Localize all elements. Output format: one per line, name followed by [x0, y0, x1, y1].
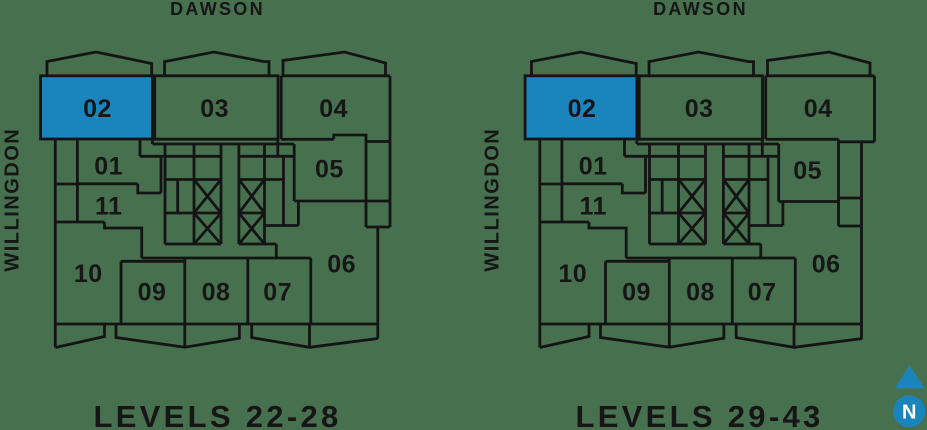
svg-text:DAWSON: DAWSON — [170, 0, 265, 19]
svg-text:WILLINGDON: WILLINGDON — [2, 128, 24, 272]
svg-text:05: 05 — [793, 157, 822, 185]
svg-text:WILLINGDON: WILLINGDON — [481, 128, 503, 272]
svg-text:LEVELS 22-28: LEVELS 22-28 — [93, 399, 341, 430]
svg-text:DAWSON: DAWSON — [653, 0, 748, 19]
svg-text:05: 05 — [315, 156, 344, 184]
svg-text:LEVELS 29-43: LEVELS 29-43 — [575, 399, 823, 430]
svg-text:N: N — [902, 401, 916, 423]
